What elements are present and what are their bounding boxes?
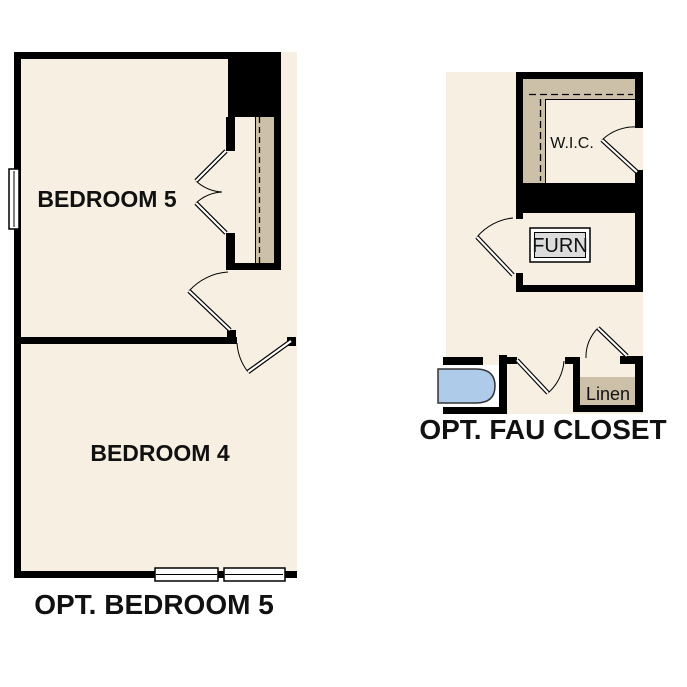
wall-segment bbox=[635, 356, 643, 412]
linen-label: Linen bbox=[586, 384, 630, 404]
bedroom5-window bbox=[9, 169, 19, 229]
wall-segment bbox=[274, 52, 281, 270]
closet-top-block bbox=[228, 57, 281, 117]
furnace-label: FURN bbox=[532, 235, 588, 257]
wall-segment bbox=[516, 72, 523, 183]
wall-segment bbox=[443, 407, 507, 414]
bedroom-floor bbox=[14, 52, 297, 578]
wall-segment bbox=[635, 213, 643, 292]
wall-segment bbox=[573, 357, 580, 412]
wic-label: W.I.C. bbox=[550, 135, 594, 152]
opt-fau-closet-plan: W.I.C. FURN Linen OPT. FAU CLOSET bbox=[419, 72, 666, 445]
floorplan-drawing: BEDROOM 5 BEDROOM 4 OPT. BEDROOM 5 bbox=[0, 0, 687, 687]
wall-segment bbox=[499, 355, 507, 414]
bedroom4-label: BEDROOM 4 bbox=[90, 440, 230, 466]
opt-bedroom5-caption: OPT. BEDROOM 5 bbox=[34, 589, 274, 620]
closet-jamb bbox=[226, 233, 235, 270]
wall-segment bbox=[14, 337, 237, 344]
wall-segment bbox=[14, 52, 21, 578]
bathtub bbox=[438, 369, 495, 403]
opt-bedroom5-plan: BEDROOM 5 BEDROOM 4 OPT. BEDROOM 5 bbox=[9, 52, 297, 620]
closet-shelf bbox=[255, 117, 275, 263]
wall-segment bbox=[573, 405, 643, 412]
floorplan-page: BEDROOM 5 BEDROOM 4 OPT. BEDROOM 5 bbox=[0, 0, 687, 687]
wall-segment bbox=[516, 285, 643, 292]
bathtub-area bbox=[438, 365, 499, 407]
wall-segment bbox=[516, 72, 643, 79]
wall-segment bbox=[635, 72, 643, 128]
closet-jamb bbox=[226, 117, 235, 151]
opt-fau-closet-caption: OPT. FAU CLOSET bbox=[419, 414, 666, 445]
wall-segment bbox=[228, 263, 281, 270]
bedroom5-label: BEDROOM 5 bbox=[37, 186, 177, 212]
door-jamb bbox=[516, 213, 523, 219]
wall-segment bbox=[443, 357, 483, 365]
door-jamb bbox=[507, 357, 517, 364]
wall-band bbox=[516, 183, 643, 213]
